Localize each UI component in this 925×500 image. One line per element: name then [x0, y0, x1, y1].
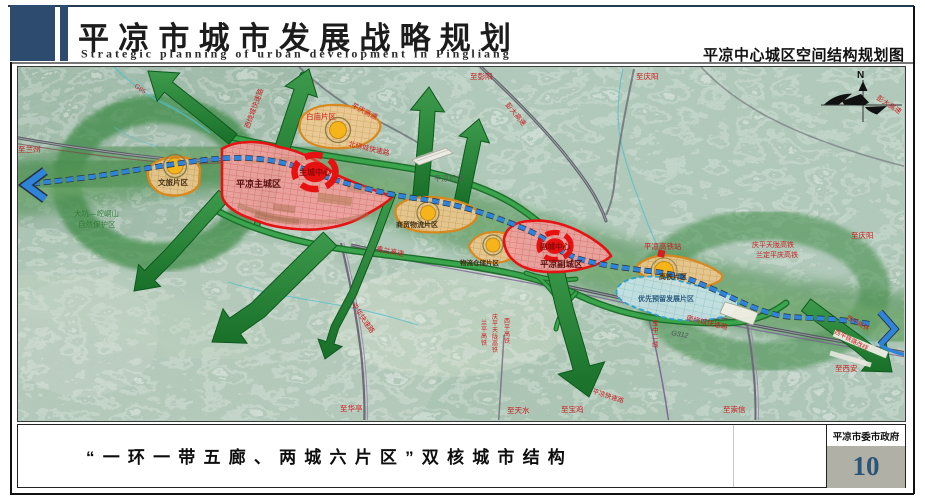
svg-text:物流仓储片区: 物流仓储片区 — [460, 258, 500, 267]
svg-text:自然保护区: 自然保护区 — [78, 219, 116, 229]
svg-text:大坑—崆峒山: 大坑—崆峒山 — [74, 208, 119, 218]
svg-text:副城中心: 副城中心 — [540, 241, 570, 251]
svg-text:庆平天陇高铁: 庆平天陇高铁 — [492, 313, 498, 354]
svg-text:白庙片区: 白庙片区 — [306, 111, 336, 121]
svg-text:平凉主城区: 平凉主城区 — [236, 178, 281, 189]
svg-text:平凉机场: 平凉机场 — [434, 173, 464, 183]
svg-text:至彭阳: 至彭阳 — [470, 71, 493, 81]
svg-text:兰平高铁: 兰平高铁 — [481, 319, 487, 347]
svg-text:至西安: 至西安 — [835, 363, 858, 373]
svg-text:至兰州: 至兰州 — [18, 144, 41, 154]
svg-text:平凉副城区: 平凉副城区 — [540, 259, 583, 269]
svg-text:兰定平庆高铁: 兰定平庆高铁 — [756, 250, 798, 259]
svg-text:宝中二线: 宝中二线 — [652, 318, 659, 348]
svg-text:文旅片区: 文旅片区 — [158, 177, 188, 187]
svg-text:至天水: 至天水 — [507, 405, 530, 415]
svg-text:至宝鸡: 至宝鸡 — [561, 404, 584, 414]
svg-text:商贸物流片区: 商贸物流片区 — [396, 220, 438, 229]
svg-text:优先预留发展片区: 优先预留发展片区 — [638, 294, 694, 303]
svg-text:庆平天陇高铁: 庆平天陇高铁 — [752, 240, 794, 249]
svg-text:平凉高铁站: 平凉高铁站 — [644, 241, 682, 251]
svg-text:至崇信: 至崇信 — [723, 404, 746, 414]
svg-text:至庆阳: 至庆阳 — [636, 71, 659, 81]
svg-text:高铁片区: 高铁片区 — [659, 272, 687, 281]
svg-text:至华亭: 至华亭 — [340, 403, 363, 413]
svg-text:至庆阳: 至庆阳 — [851, 230, 874, 240]
svg-text:N: N — [857, 70, 864, 81]
svg-text:西平高铁: 西平高铁 — [504, 318, 510, 345]
svg-text:主城中心: 主城中心 — [299, 167, 331, 177]
